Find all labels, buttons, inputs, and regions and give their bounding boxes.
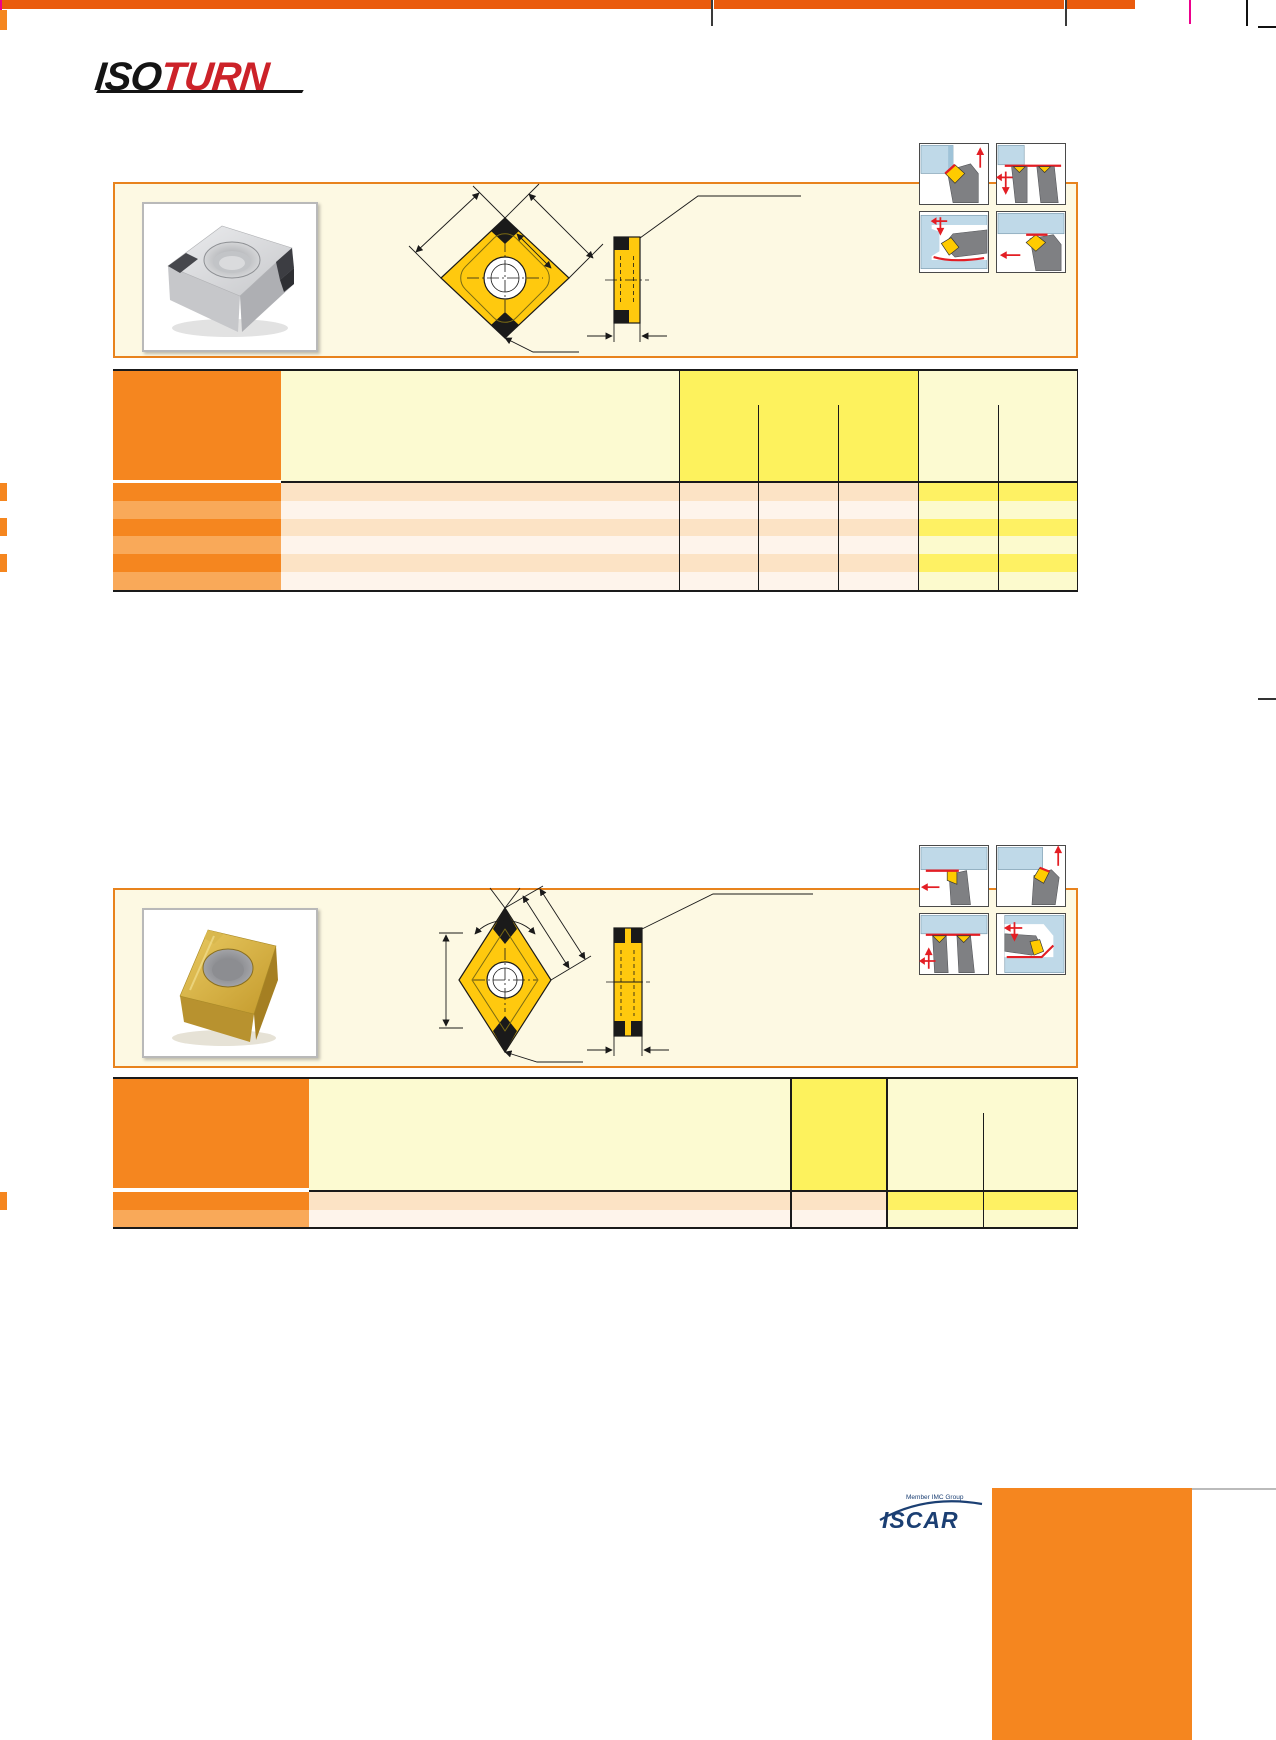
iscar-logo-text: ISCAR xyxy=(882,1507,959,1533)
insert-photo-2 xyxy=(142,908,318,1058)
table2-bottom-border xyxy=(113,1227,1078,1229)
table2-row1-col1 xyxy=(113,1192,309,1210)
table1-row6-mid xyxy=(281,572,919,590)
table2-divider xyxy=(790,1079,792,1227)
table2-header-designation-cell xyxy=(113,1079,309,1188)
table2-header-dimensions-cell xyxy=(309,1079,791,1190)
iscar-logo: Member IMC Group ISCAR xyxy=(876,1490,988,1534)
left-edge-tick xyxy=(0,518,7,536)
table1-row3-col1 xyxy=(113,519,281,537)
insert-photo-1 xyxy=(142,202,318,352)
insert-photo-2-image xyxy=(144,910,316,1056)
icon2-two-tools-facing xyxy=(919,913,989,975)
crop-mark-dash xyxy=(1258,26,1276,28)
icon-facing-two-tools xyxy=(996,143,1066,205)
table2-header-bottom-border xyxy=(309,1190,1078,1192)
catalog-page: ISOTURN xyxy=(0,0,1276,1740)
isoturn-logo: ISOTURN xyxy=(95,54,310,104)
crop-mark-black xyxy=(1246,0,1248,26)
table2-divider xyxy=(983,1113,985,1227)
logo-underline xyxy=(96,90,303,93)
table1-row5-mid xyxy=(281,554,919,572)
right-margin-tick xyxy=(1258,698,1276,700)
crop-mark-magenta xyxy=(1189,0,1191,24)
icon-internal-profiling xyxy=(919,211,989,273)
table1-divider xyxy=(679,371,681,590)
table1-row2-mid xyxy=(281,501,919,519)
table2-row2-mid xyxy=(309,1210,887,1228)
insert-table-2 xyxy=(113,1077,1078,1229)
insert-table-1 xyxy=(113,369,1078,592)
table1-row4-mid xyxy=(281,536,919,554)
table1-row6-col1 xyxy=(113,572,281,590)
table2-divider xyxy=(886,1079,888,1227)
table1-header-group-yellow xyxy=(680,371,919,481)
member-imc-text: Member IMC Group xyxy=(906,1494,964,1501)
left-edge-tick xyxy=(0,10,7,30)
table1-bottom-border xyxy=(113,590,1078,592)
table1-row4-col1 xyxy=(113,536,281,554)
table2-header-yellow-cell xyxy=(791,1079,887,1190)
table1-row1-mid xyxy=(281,483,919,501)
table1-row2-col1 xyxy=(113,501,281,519)
icon-facing-left xyxy=(996,211,1066,273)
registration-tick xyxy=(1065,0,1067,26)
registration-tick xyxy=(711,0,713,26)
table1-row1-col1 xyxy=(113,483,281,501)
top-color-bar-segment xyxy=(714,0,1064,9)
table1-divider xyxy=(998,405,1000,590)
left-edge-tick xyxy=(0,554,7,572)
table1-divider xyxy=(838,405,840,590)
icon2-internal-boring xyxy=(996,913,1066,975)
left-edge-tick xyxy=(0,483,7,501)
table1-header-designation-cell xyxy=(113,371,281,480)
table2-row1-mid xyxy=(309,1192,887,1210)
table1-header-dimensions-cell xyxy=(281,371,680,481)
left-edge-tick xyxy=(0,1192,7,1210)
table2-row2-col1 xyxy=(113,1210,309,1228)
table1-divider xyxy=(758,405,760,590)
footer-hairline xyxy=(1192,1488,1276,1490)
top-color-bar-segment xyxy=(0,0,711,9)
top-color-bar-segment xyxy=(1067,0,1135,9)
icon2-turning-up xyxy=(996,845,1066,907)
table1-divider xyxy=(918,371,920,590)
table2-right-border xyxy=(1077,1079,1079,1227)
table1-row5-col1 xyxy=(113,554,281,572)
icon2-facing-left xyxy=(919,845,989,907)
table2-top-border xyxy=(113,1077,1078,1079)
table1-row3-mid xyxy=(281,519,919,537)
table1-right-border xyxy=(1077,371,1079,590)
table1-top-border xyxy=(113,369,1078,371)
footer-orange-block xyxy=(992,1488,1192,1740)
insert-photo-1-image xyxy=(144,204,316,350)
icon-external-turning-up xyxy=(919,143,989,205)
